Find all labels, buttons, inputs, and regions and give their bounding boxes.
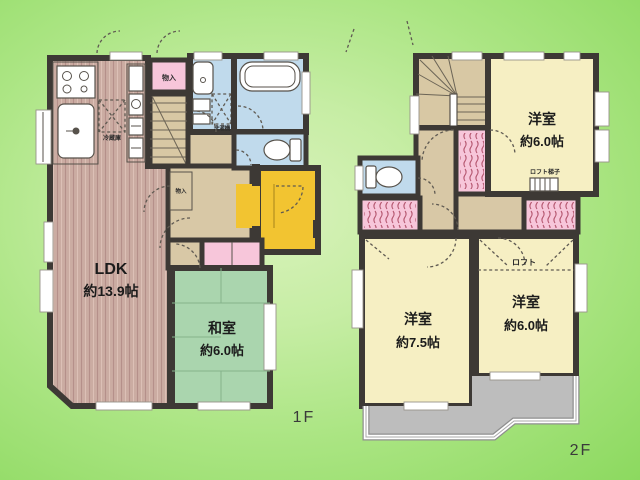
floor1-label: 1F: [293, 409, 316, 426]
kitchen-sink-icon: [58, 104, 94, 158]
toilet-bowl-2f: [376, 167, 402, 187]
toilet-2f: [360, 158, 418, 196]
floor-1f-plan: 物入 物入 洗濯機: [36, 21, 413, 426]
closet-2f-center: [456, 128, 488, 194]
bedroom-right-size: 約6.0帖: [504, 318, 548, 333]
loft-ladder-icon: [530, 178, 558, 191]
gas-stove-icon: [57, 66, 95, 98]
bedroom-right-label: 洋室: [512, 294, 540, 310]
bedroom-left-size: 約7.5帖: [396, 335, 440, 350]
bedroom-top-label: 洋室: [528, 111, 556, 127]
bedroom-top-size: 約6.0帖: [520, 134, 564, 149]
exterior-dash-marks: [97, 21, 413, 53]
loft-label: ロフト: [512, 258, 536, 267]
washitsu-label: 和室: [208, 320, 236, 336]
ldk-label: LDK: [95, 261, 128, 278]
hall-1f-upper: [188, 130, 234, 168]
toilet-1f: [234, 132, 306, 168]
hall-1f-passage: [168, 240, 202, 268]
refrigerator-label: 冷蔵庫: [103, 134, 121, 142]
closet-2f-right: [524, 198, 578, 232]
kitchen-counter: [53, 62, 98, 164]
toilet-bowl-1f: [264, 140, 290, 160]
washitsu-size: 約6.0帖: [200, 343, 244, 358]
hall-2f-bottom: [456, 194, 526, 232]
kitchen-appliance-column: [127, 64, 145, 162]
loft-ladder-label: ロフト梯子: [530, 168, 560, 176]
floorplan-image: 物入 物入 洗濯機: [0, 0, 640, 480]
closet-1f-top-label: 物入: [162, 73, 176, 82]
bathroom-1f: [234, 56, 306, 132]
floor-2f-plan: ロフト梯子: [352, 52, 609, 459]
closet-1f-hall-label: 物入: [175, 187, 187, 195]
floorplan-svg: 物入 物入 洗濯機: [0, 0, 640, 480]
ldk-size: 約13.9帖: [83, 283, 138, 299]
front-door: [313, 220, 321, 238]
stairs-2f: [416, 56, 488, 128]
closet-2f-left: [360, 198, 420, 232]
stairs-1f: [150, 94, 188, 166]
floor2-label: 2F: [570, 442, 593, 459]
bedroom-left-label: 洋室: [404, 311, 432, 327]
